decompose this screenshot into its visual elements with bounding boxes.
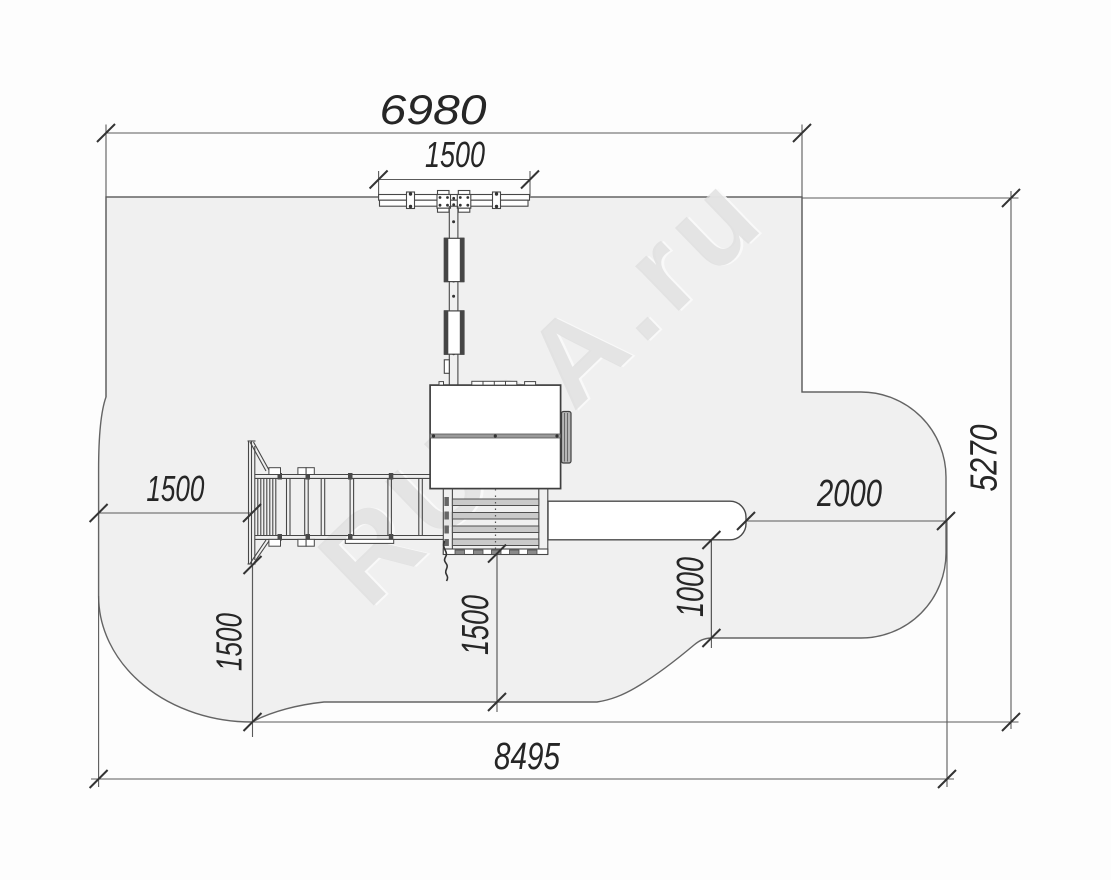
svg-text:8495: 8495 [494,736,561,778]
svg-text:5270: 5270 [964,425,1006,492]
svg-text:1000: 1000 [670,557,712,617]
svg-text:1500: 1500 [209,613,250,671]
svg-text:6980: 6980 [380,86,488,133]
svg-text:2000: 2000 [816,473,882,515]
svg-text:1500: 1500 [146,468,204,509]
svg-text:1500: 1500 [455,595,497,655]
svg-text:1500: 1500 [425,134,485,175]
